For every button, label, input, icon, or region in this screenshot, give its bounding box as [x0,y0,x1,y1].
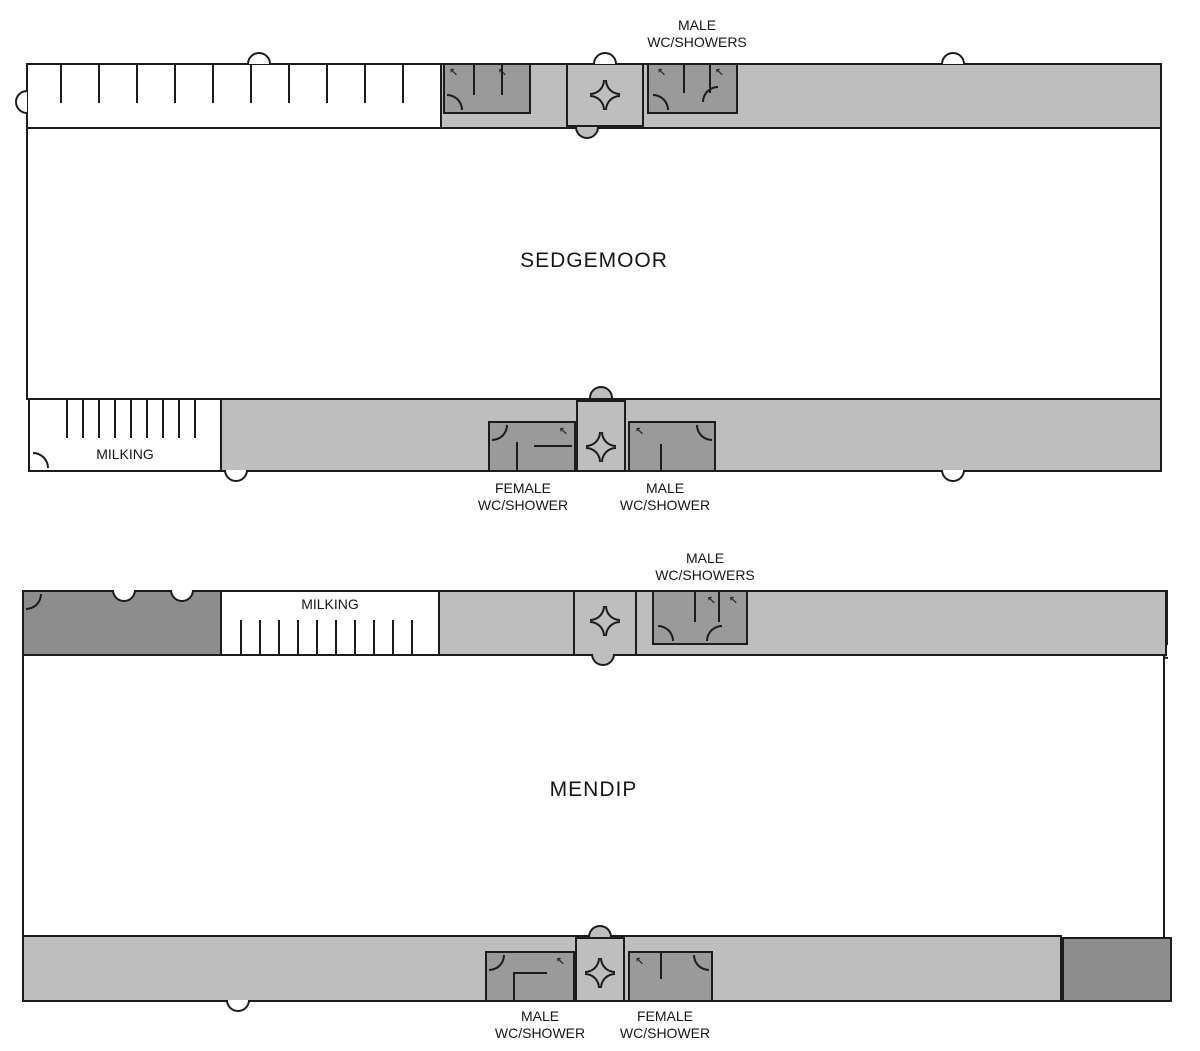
door-arc-icon [26,594,42,610]
shower-icon: ↖ [635,427,644,438]
sedgemoor-male-wc-showers-label: MALE WC/SHOWERS [597,17,797,51]
shower-partition [513,972,515,1000]
double-door-icon [586,432,616,462]
sedgemoor-shower-block-west: ↖ ↖ [443,63,531,114]
double-door-icon [585,958,615,988]
mendip-male-wc-label: MALE WC/SHOWER [470,1008,610,1042]
farm-floor-plan: MALE WC/SHOWERS ↖ ↖ ↖ ↖ BED 45 BE [0,0,1200,1051]
sedgemoor-open-stall-area [26,63,442,129]
door-arc-icon [489,955,505,971]
sedgemoor-top-wing [440,63,1162,129]
mendip-male-wc-shower: ↖ [485,951,575,1002]
shower-partition [501,65,503,95]
sedgemoor-milking-area: MILKING [28,398,222,472]
stall-dividers [240,620,424,654]
sedgemoor-male-wc-label: MALE WC/SHOWER [595,480,735,514]
shower-icon: ↖ [715,68,724,79]
sedgemoor-male-wc-shower: ↖ [628,421,716,472]
door-bump [247,52,271,64]
door-arc-icon [653,94,669,110]
shower-partition [513,972,547,974]
mendip-female-wc-label: FEMALE WC/SHOWER [595,1008,735,1042]
shower-icon: ↖ [449,68,458,79]
double-door-icon [590,606,620,636]
door-arc-icon [693,955,709,971]
shower-icon: ↖ [559,427,568,438]
sedgemoor-female-wc-label: FEMALE WC/SHOWER [453,480,593,514]
stall-dividers [66,400,210,438]
shower-icon: ↖ [657,68,666,79]
mendip-hall: MENDIP [22,654,1165,937]
shower-partition [718,592,720,622]
shower-partition [473,65,475,95]
shower-partition [694,592,696,622]
milking-label: MILKING [30,446,220,462]
shower-icon: ↖ [729,596,738,607]
door-arc-icon [696,425,712,441]
sedgemoor-male-wc-showers: ↖ ↖ [647,63,738,114]
milking-label: MILKING [222,596,438,612]
mendip-female-wc-shower: ↖ [628,951,713,1002]
building-name-mendip: MENDIP [24,778,1163,802]
door-bump [593,52,617,64]
mendip-east-block [1062,937,1172,1002]
door-arc-icon [492,425,508,441]
door-bump [226,1000,250,1012]
mendip-male-wc-showers-label: MALE WC/SHOWERS [605,550,805,584]
shower-partition [683,65,685,93]
shower-icon: ↖ [556,957,565,968]
shower-partition [660,953,662,979]
shower-icon: ↖ [707,596,716,607]
door-bump [941,470,965,482]
door-bump [15,90,27,114]
sedgemoor-female-wc-shower: ↖ [488,421,576,472]
building-name-sedgemoor: SEDGEMOOR [28,249,1160,273]
shower-icon: ↖ [635,957,644,968]
door-arc-icon [658,625,674,641]
door-arc-icon [702,86,718,102]
mendip-top-wing [438,590,1167,656]
mendip-milking-area: MILKING [220,590,440,656]
door-arc-icon [447,94,463,110]
shower-partition [516,442,518,470]
shower-partition [534,445,572,447]
door-bump [224,470,248,482]
shower-partition [660,444,662,470]
door-arc-icon [706,625,722,641]
double-door-icon [590,80,620,110]
door-bump [941,52,965,64]
mendip-male-wc-showers: ↖ ↖ [652,590,748,645]
stall-dividers [60,65,438,103]
sedgemoor-hall: SEDGEMOOR [26,127,1162,400]
